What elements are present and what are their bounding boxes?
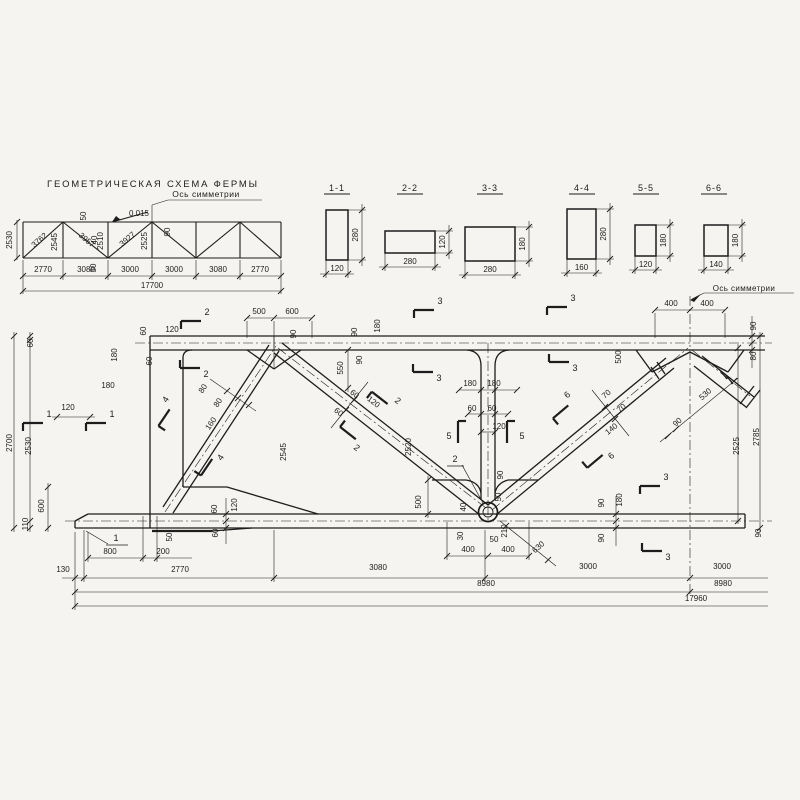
elevation-dim-label: 120 (165, 325, 179, 334)
section-flag: 3 (549, 354, 578, 373)
scheme-dim-label: 3762 (30, 231, 50, 250)
elevation-dim-label: 550 (336, 361, 345, 375)
elevation-dim-label: 60 (26, 338, 35, 347)
elevation-dim-label: 8980 (477, 579, 495, 588)
section-title: 5-5 (638, 183, 654, 193)
elevation-dim-label: 90 (289, 329, 298, 338)
truss-drawing-svg: ГЕОМЕТРИЧЕСКАЯ СХЕМА ФЕРМЫОсь симметрии2… (0, 0, 800, 800)
section-flag-number: 2 (393, 395, 403, 406)
section-flag: 3 (547, 293, 576, 315)
elevation-dim-label: 60 (211, 528, 220, 537)
elevation-dim-label: 160 (203, 415, 218, 432)
elevation-dim-label: 90 (754, 528, 763, 537)
detail-leader-number: 1 (113, 533, 118, 543)
elevation-dim-label: 90 (749, 321, 758, 330)
section-height: 280 (351, 228, 360, 242)
section-shape (567, 209, 596, 259)
elevation-dim-label: 30 (456, 531, 465, 540)
section-flag: 3 (414, 296, 443, 318)
elevation-dim-label: 180 (487, 379, 501, 388)
section-flag-number: 2 (203, 369, 208, 379)
section-flag: 6 (544, 389, 580, 424)
elevation-dim-label: 70 (600, 387, 613, 400)
scheme-dim-label: 2770 (34, 265, 52, 274)
elevation-dim-label: 500 (252, 307, 266, 316)
section-width: 120 (330, 264, 344, 273)
elevation-dim-label: 50 (490, 535, 499, 544)
elevation-dim-label: 90 (350, 327, 359, 336)
section-flag: 3 (413, 364, 442, 383)
section-width: 140 (709, 260, 723, 269)
section-flag: 5 (507, 421, 525, 443)
elevation-dim-label: 70 (615, 401, 628, 414)
elevation-dim-label: 2530 (24, 437, 33, 455)
section-flag-number: 3 (665, 552, 670, 562)
section-title: 3-3 (482, 183, 498, 193)
elevation-dim-label: 2785 (752, 428, 761, 446)
section-flag: 2 (180, 360, 209, 379)
elevation-dim-label: 180 (615, 493, 624, 507)
section-flag-number: 3 (437, 296, 442, 306)
elevation-dim-label: 17960 (685, 594, 708, 603)
elevation-dim-label: 80 (197, 382, 210, 395)
scheme-dim-label: 2530 (5, 231, 14, 249)
elevation-dim-label: 110 (21, 517, 30, 530)
scheme-dim-label: 3080 (209, 265, 227, 274)
section-height: 180 (659, 233, 668, 247)
elevation-dim-label: 2700 (5, 434, 14, 452)
section-width: 280 (403, 257, 417, 266)
scheme-symmetry-label: Ось симметрии (172, 189, 239, 199)
elevation-dim-label: 180 (373, 319, 382, 333)
section-shape (704, 225, 728, 256)
elevation-dim-label: 3000 (713, 562, 731, 571)
scheme-dim-label: 2525 (140, 232, 149, 250)
elevation-dim-label: 400 (664, 299, 678, 308)
elevation-dim-label: 90 (355, 355, 364, 364)
elevation-dim-label: 60 (348, 388, 361, 401)
elevation-dim-label: 2770 (171, 565, 189, 574)
section-height: 120 (438, 235, 447, 249)
section-flag-number: 2 (204, 307, 209, 317)
elevation-dim-label: 130 (56, 565, 70, 574)
elevation-dim-label: 50 (165, 532, 174, 541)
scheme-dim-label: 17700 (141, 281, 164, 290)
section-shape (635, 225, 656, 256)
section-flag: 2 (181, 307, 210, 329)
section-flag: 5 (446, 421, 466, 443)
section-flag-number: 4 (215, 452, 226, 462)
elevation-dim-label: 120 (230, 498, 239, 512)
scheme-dim-label: 50 (79, 211, 88, 220)
section-width: 120 (639, 260, 653, 269)
scheme-dim-label: 2545 (50, 233, 59, 251)
elevation-dim-label: 2520 (404, 438, 413, 456)
elevation-dim-label: 800 (103, 547, 117, 556)
truss-elevation: Ось симметрии606012018018012060253060011… (5, 284, 794, 610)
elevation-dim-label: 400 (501, 545, 515, 554)
scheme-dim-label: 3000 (165, 265, 183, 274)
cross-sections: 1-11202802-22801203-32801804-41602805-51… (320, 183, 746, 279)
section-flag-number: 5 (519, 431, 524, 441)
geometric-scheme: ГЕОМЕТРИЧЕСКАЯ СХЕМА ФЕРМЫОсь симметрии2… (5, 179, 284, 294)
detail-leaders: 12 (86, 454, 483, 545)
section-width: 280 (483, 265, 497, 274)
elevation-dim-label: 400 (461, 545, 475, 554)
section-title: 1-1 (329, 183, 345, 193)
elevation-dim-label: 180 (463, 379, 477, 388)
section-flag-number: 3 (436, 373, 441, 383)
elevation-dim-label: 200 (156, 547, 170, 556)
elevation-dim-label: 210 (500, 524, 509, 538)
elevation-dim-label: 500 (414, 495, 423, 509)
section-flag-number: 1 (46, 409, 51, 419)
section-shape (465, 227, 515, 261)
elevation-dim-label: 90 (597, 533, 606, 542)
elevation-dim-label: 3000 (579, 562, 597, 571)
section-flag-number: 3 (663, 472, 668, 482)
elevation-dim-label: 60 (210, 504, 219, 513)
elevation-dim-label: 80 (749, 351, 758, 360)
elevation-dim-label: 630 (530, 539, 546, 555)
section-flag: 3 (642, 543, 671, 562)
section-flag-number: 1 (109, 409, 114, 419)
elevation-dim-label: 120 (61, 403, 75, 412)
drawing-sheet: ГЕОМЕТРИЧЕСКАЯ СХЕМА ФЕРМЫОсь симметрии2… (0, 0, 800, 800)
section-flag-number: 3 (570, 293, 575, 303)
section-shape (326, 210, 348, 260)
elevation-dim-label: 60 (139, 326, 148, 335)
detail-leader-number: 2 (452, 454, 457, 464)
elevation-dim-label: 2525 (732, 437, 741, 455)
section-flag-number: 6 (606, 450, 616, 461)
elevation-dim-label: 60 (488, 404, 497, 413)
section-title: 6-6 (706, 183, 722, 193)
section-height: 180 (731, 233, 740, 247)
section-flag: 1 (86, 409, 115, 431)
elevation-dim-label: 60 (145, 356, 154, 365)
scheme-dim-label: 2770 (251, 265, 269, 274)
scheme-dim-label: 0.015 (129, 209, 150, 218)
elevation-dim-label: 600 (285, 307, 299, 316)
elevation-dim-label: 120 (492, 422, 506, 431)
scheme-dim-label: 3927 (118, 230, 138, 249)
scheme-dim-label: 3080 (77, 265, 95, 274)
elevation-dim-label: 90 (597, 498, 606, 507)
elevation-dim-label: 80 (212, 396, 225, 409)
elevation-dim-label: 50 (494, 492, 503, 501)
elevation-dim-label: 2545 (279, 443, 288, 461)
elevation-dim-label: 500 (614, 350, 623, 364)
elevation-symmetry-label: Ось симметрии (713, 284, 776, 293)
section-flag: 6 (582, 443, 616, 476)
section-flag: 1 (23, 409, 52, 431)
section-flag: 4 (147, 394, 181, 430)
elevation-dim-label: 140 (603, 421, 619, 437)
section-title: 4-4 (574, 183, 590, 193)
scheme-dim-label: 40 (90, 235, 99, 244)
elevation-dim-label: 180 (101, 381, 115, 390)
section-flag: 2 (333, 421, 367, 454)
elevation-dim-label: 400 (700, 299, 714, 308)
elevation-dim-label: 180 (110, 348, 119, 362)
scheme-dim-label: 3000 (121, 265, 139, 274)
elevation-dim-label: 600 (37, 499, 46, 513)
section-flag-number: 4 (160, 394, 171, 404)
section-flag-number: 5 (446, 431, 451, 441)
section-height: 180 (518, 237, 527, 251)
section-flag-number: 2 (352, 442, 362, 453)
section-height: 280 (599, 227, 608, 241)
elevation-dim-label: 3080 (369, 563, 387, 572)
section-cut-flags: 221144223333556633 (23, 293, 671, 562)
section-width: 160 (575, 263, 589, 272)
section-flag-number: 6 (562, 389, 572, 400)
section-shape (385, 231, 435, 253)
elevation-dim-label: 530 (697, 386, 713, 402)
elevation-dim-label: 40 (459, 502, 468, 511)
elevation-dim-label: 60 (468, 404, 477, 413)
section-flag: 3 (640, 472, 669, 494)
elevation-dim-label: 90 (496, 470, 505, 479)
elevation-dim-label: 8980 (714, 579, 732, 588)
section-title: 2-2 (402, 183, 418, 193)
scheme-dim-label: 90 (163, 227, 172, 236)
elevation-dim-label: 90 (671, 415, 684, 428)
section-flag-number: 3 (572, 363, 577, 373)
